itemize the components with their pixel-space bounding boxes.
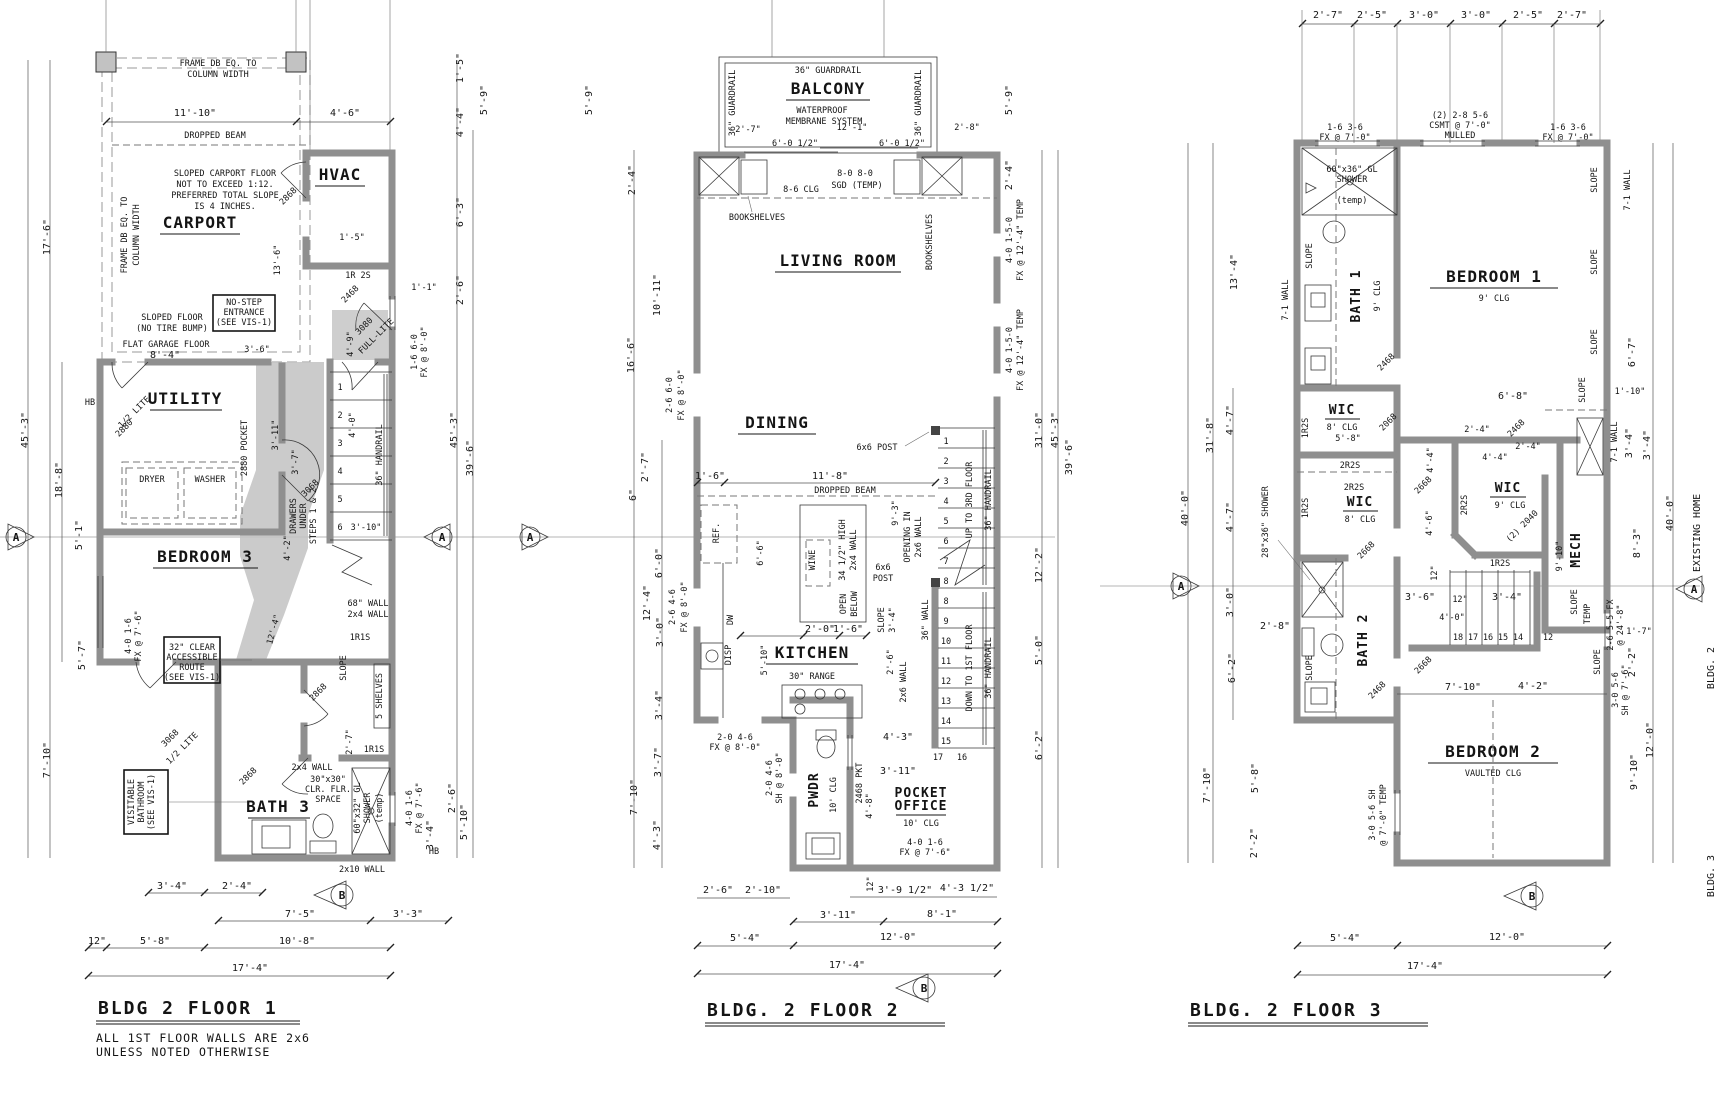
floorplan-sheet: A A A A A 1 2 3 4 xyxy=(0,0,1722,1100)
dim: 4'-0" xyxy=(348,412,358,438)
dim: 2'-7" xyxy=(1557,10,1587,21)
dim: 2'-5" xyxy=(1513,10,1543,21)
riser-label: 1R1S xyxy=(350,633,370,643)
dim: 3'-7" xyxy=(291,449,301,475)
door-tag: 2468 xyxy=(1506,418,1528,440)
shower-label: 60"x32" GL xyxy=(353,782,363,833)
window-tag: FX @ 7'-6" xyxy=(134,610,144,661)
window-tag: 1-6 3-6 xyxy=(1327,123,1363,133)
window-tag: FX @ 7'-0" xyxy=(1319,133,1370,143)
dim: 4'-4" xyxy=(1482,453,1508,463)
note: FRAME DB EQ. TO xyxy=(120,197,130,274)
dim: 3'-0" xyxy=(1461,10,1491,21)
window-tag: 2-0 4-6 xyxy=(717,733,753,743)
dim: 2'-7" xyxy=(640,452,651,482)
wall-note: 2x4 WALL xyxy=(348,610,389,620)
dim: 17'-4" xyxy=(232,963,268,974)
dim: 1'-5" xyxy=(339,233,365,243)
dim: 7'-10" xyxy=(42,742,53,778)
window-tag: CSMT @ 7'-0" xyxy=(1429,121,1490,131)
riser-label: 1R2S xyxy=(1490,559,1510,569)
room-label-office: OFFICE xyxy=(895,799,948,814)
window-tag: MULLED xyxy=(1445,131,1476,141)
dim: 6" xyxy=(628,489,639,501)
dim: 12'-0" xyxy=(1489,932,1525,943)
door-tag: 8-0 8-0 xyxy=(837,169,873,179)
window-tag: SH @ 8'-0" xyxy=(775,752,785,803)
dim: 3'-4" xyxy=(425,820,436,850)
slope-label: SLOPE xyxy=(1590,249,1600,275)
utility-fixtures: DRYER WASHER xyxy=(122,462,242,524)
stair-number: 6 xyxy=(337,523,342,533)
dim: 5'-9" xyxy=(1004,85,1015,115)
room-label-bath2: BATH 2 xyxy=(1356,614,1371,667)
dim: 2'-5" xyxy=(1357,10,1387,21)
note: ROUTE xyxy=(179,663,205,673)
stair-number: 14 xyxy=(1513,633,1523,643)
bookshelves-label: BOOKSHELVES xyxy=(925,214,935,270)
dim: 13'-4" xyxy=(1229,254,1240,290)
riser-label: 1R2S xyxy=(1301,418,1311,438)
floor3-title: BLDG. 2 FLOOR 3 xyxy=(1190,1000,1383,1021)
dim: 4'-8" xyxy=(865,793,875,819)
note: (NO TIRE BUMP) xyxy=(136,324,208,334)
window-tag: FX @ 12'-4" TEMP xyxy=(1016,199,1026,281)
dim: 2'-4" xyxy=(222,881,252,892)
dim: 2'-4" xyxy=(627,165,638,195)
dim: 3'-0" xyxy=(655,617,666,647)
dim: 40'-0" xyxy=(1180,490,1191,526)
window-tag: FX @ 7'-6" xyxy=(899,848,950,858)
note: DRAWERS xyxy=(289,498,299,534)
wall-note: 36" WALL xyxy=(921,600,931,641)
post xyxy=(931,426,940,435)
dim: 5'-4" xyxy=(730,933,760,944)
dim: 1'-6" xyxy=(833,624,863,635)
room-label-wic: WIC xyxy=(1329,403,1355,418)
dim: 7'-5" xyxy=(285,909,315,920)
dim: 3'-4" xyxy=(157,881,187,892)
shower-label: SHOWER xyxy=(363,792,373,824)
dim: 6'-2" xyxy=(1227,653,1238,683)
wall-note: 7-1 WALL xyxy=(1623,170,1633,211)
shower-label: 28"x36" SHOWER xyxy=(1261,485,1271,558)
shower-label: (temp) xyxy=(1337,196,1368,206)
room-label-living: LIVING ROOM xyxy=(780,251,897,270)
dim: 9'-10" xyxy=(1629,754,1640,790)
floor2-title: BLDG. 2 FLOOR 2 xyxy=(707,1000,900,1021)
marker-label: B xyxy=(1529,890,1536,903)
riser-label: 2R2S xyxy=(1344,483,1364,493)
shelves-label: 5 SHELVES xyxy=(375,673,385,719)
floor1-title: BLDG 2 FLOOR 1 xyxy=(98,998,278,1019)
dim: 2'-4" xyxy=(1464,425,1490,435)
dim: 5'-10" xyxy=(760,645,770,676)
room-label-wic: WIC xyxy=(1495,481,1521,496)
dim: 3'-0" xyxy=(1225,587,1236,617)
door-tag: 2868 xyxy=(238,766,260,788)
dim: 4'-9" xyxy=(346,331,356,357)
washer-label: WASHER xyxy=(195,475,227,485)
window-tag: (2) 2-8 5-6 xyxy=(1432,111,1488,121)
window-tag: FX @ 8'-0" xyxy=(680,581,690,632)
window-tag: FX @ 12'-4" TEMP xyxy=(1016,309,1026,391)
dim: 2'-6" xyxy=(703,885,733,896)
note: COLUMN WIDTH xyxy=(187,70,248,80)
window-tag: 4-0 1-5-0 xyxy=(1005,327,1015,373)
dim: 9'-10" xyxy=(1555,541,1565,572)
room-label-carport: CARPORT xyxy=(163,213,237,232)
disposal-label: DISP xyxy=(724,645,734,665)
window-tag: 2-6 6-0 xyxy=(665,377,675,413)
stair-number: 2 xyxy=(943,457,948,467)
note: NOT TO EXCEED 1:12. xyxy=(176,180,273,190)
note: SPACE xyxy=(315,795,341,805)
dim: 6'-0" xyxy=(654,548,665,578)
dim: 11'-10" xyxy=(174,108,216,119)
fridge-label: REF. xyxy=(712,523,722,543)
note: BATHROOM xyxy=(137,782,147,823)
dim: 1'-7" xyxy=(1626,627,1652,637)
dim: 2'-10" xyxy=(745,885,781,896)
dim: 12'-4" xyxy=(642,585,653,621)
post xyxy=(931,578,940,587)
ceiling-label: 8-6 CLG xyxy=(783,185,819,195)
marker-label: A xyxy=(1178,580,1185,593)
dim: 3'-6" xyxy=(244,345,270,355)
stair-number: 2 xyxy=(337,411,342,421)
hose-bib-label: HB xyxy=(85,398,95,408)
dim: 31'-0" xyxy=(1034,412,1045,448)
existing-home-label: EXISTING HOME xyxy=(1692,494,1703,572)
note: (SEE VIS-1) xyxy=(216,318,272,328)
note: 2x6 WALL xyxy=(914,517,924,558)
wall-note: 7-1 WALL xyxy=(1281,280,1291,321)
handrail-label: 36" HANDRAIL xyxy=(375,424,385,485)
dim: 8'-3" xyxy=(1632,528,1643,558)
window-tag: 4-0 1-6 xyxy=(124,618,134,654)
note: STEPS 1 & 2 xyxy=(309,488,319,544)
dim: 3'-9 1/2" xyxy=(878,885,932,896)
room-label-hvac: HVAC xyxy=(319,165,362,184)
grid-marker-b3: B xyxy=(1504,882,1543,910)
ceiling-label: 8' CLG xyxy=(1345,515,1376,525)
note: (SEE VIS-1) xyxy=(164,673,220,683)
note: 30"x30" xyxy=(310,775,346,785)
stair-number: 15 xyxy=(941,737,951,747)
temp-label: TEMP xyxy=(1583,604,1593,624)
dim: 4'-3 1/2" xyxy=(940,883,994,894)
stair-number: 5 xyxy=(943,517,948,527)
note: ACCESSIBLE xyxy=(166,653,217,663)
dim: 5'-8" xyxy=(1335,434,1361,444)
door-tag: 2880 POCKET xyxy=(240,420,250,476)
window-tag: 4-0 1-6 xyxy=(405,790,415,826)
dim: 11'-8" xyxy=(812,471,848,482)
dim: 6'-6" xyxy=(756,540,766,566)
door-tag: (2) 2040 xyxy=(1505,509,1541,545)
dim: 45'-3" xyxy=(449,412,460,448)
dim: 5'-7" xyxy=(77,640,88,670)
stair-number: 17 xyxy=(933,753,943,763)
riser-label: 1R1S xyxy=(364,745,384,755)
range-label: 30" RANGE xyxy=(789,672,835,682)
dim: 40'-0" xyxy=(1665,495,1676,531)
post-label: POST xyxy=(873,574,893,584)
dim: 4'-6" xyxy=(330,108,360,119)
dim: 3'-10" xyxy=(351,523,382,533)
guardrail-label: 36" GUARDRAIL xyxy=(795,66,862,76)
note: FLAT GARAGE FLOOR xyxy=(123,340,211,350)
stair-number: 8 xyxy=(943,597,948,607)
stair-number: 18 xyxy=(1453,633,1463,643)
dim: 4'-2" xyxy=(283,535,293,561)
door-tag: 2868 xyxy=(308,682,330,704)
stair-direction: UP TO 3RD FLOOR xyxy=(965,461,975,539)
ceiling-label: 10' CLG xyxy=(903,819,939,829)
post-label: 6x6 xyxy=(875,563,890,573)
stair-direction: DOWN TO 1ST FLOOR xyxy=(965,624,975,712)
riser-label: 1R2S xyxy=(1301,498,1311,518)
dim: 6'-8" xyxy=(1498,391,1528,402)
stair-number: 16 xyxy=(1483,633,1493,643)
wine-label: WINE xyxy=(808,550,818,570)
marker-label: A xyxy=(1691,583,1698,596)
wall-note: 68" WALL xyxy=(348,599,389,609)
stair-number: 3 xyxy=(943,477,948,487)
stair-number: 12 xyxy=(941,677,951,687)
dim: 3'-11" xyxy=(820,910,856,921)
window-tag: SH @ 7'-6" xyxy=(1621,664,1631,715)
stair-number: 13 xyxy=(941,697,951,707)
stair-number: 12 xyxy=(1543,633,1553,643)
marker-label: A xyxy=(13,531,20,544)
window-tag: 3-0 5-6 SH xyxy=(1368,789,1378,840)
wall-note: 34 1/2" HIGH xyxy=(838,519,848,580)
window-tag: 4-0 1-6 xyxy=(907,838,943,848)
note: UNDER xyxy=(299,502,309,528)
dryer-label: DRYER xyxy=(139,475,165,485)
slope-label: SLOPE xyxy=(1593,649,1603,675)
door-tag: 2468 xyxy=(340,284,362,306)
stair-number: 6 xyxy=(943,537,948,547)
dim: 4'-4" xyxy=(1426,447,1436,473)
window-tag: 3-0 5-6 xyxy=(1611,672,1621,708)
room-label-bedroom1: BEDROOM 1 xyxy=(1446,267,1542,286)
floor3-plan: 2'-7" 2'-5" 3'-0" 3'-0" 2'-5" 2'-7" 1-6 … xyxy=(1180,10,1717,1026)
dim: 8'-1" xyxy=(927,909,957,920)
dim: 4'-2" xyxy=(1518,681,1548,692)
dim: 5'-9" xyxy=(584,85,595,115)
wall-note: 2x6 WALL xyxy=(899,662,909,703)
window-tag: FX @ 7'-6" xyxy=(415,782,425,833)
dim: 12" xyxy=(1430,565,1440,580)
dim: 7'-10" xyxy=(629,779,640,815)
dim: 4'-0" xyxy=(1439,613,1465,623)
stair-number: 7 xyxy=(943,557,948,567)
dim: 2'-7" xyxy=(735,125,761,135)
note: WATERPROOF xyxy=(796,106,847,116)
slope-label: SLOPE xyxy=(339,655,349,681)
dim: 2'-6" xyxy=(447,783,458,813)
dim: 3'-0" xyxy=(1409,10,1439,21)
dim: 2'-7" xyxy=(345,729,355,755)
door-tag: 2468 xyxy=(1367,680,1389,702)
note: SLOPED FLOOR xyxy=(141,313,203,323)
floor1-note: ALL 1ST FLOOR WALLS ARE 2x6 xyxy=(96,1031,310,1045)
dim: 31'-8" xyxy=(1205,417,1216,453)
note: ENTRANCE xyxy=(224,308,265,318)
room-label-dining: DINING xyxy=(745,413,809,432)
dim: 1'-10" xyxy=(1615,387,1646,397)
dim: 3'-4" xyxy=(1492,592,1522,603)
dim: 4'-6" xyxy=(1425,510,1435,536)
stair-number: 14 xyxy=(941,717,951,727)
note: COLUMN WIDTH xyxy=(132,204,142,265)
dim: 12'-0" xyxy=(1645,722,1656,758)
room-label-bedroom3: BEDROOM 3 xyxy=(157,547,253,566)
dim: 8'-4" xyxy=(150,350,180,361)
door-tag: 2468 PKT xyxy=(855,763,865,804)
stair-number: 17 xyxy=(1468,633,1478,643)
dim: 6'-7" xyxy=(1627,337,1638,367)
dim: 12" xyxy=(1452,595,1467,605)
room-label-mech: MECH xyxy=(1569,532,1584,567)
window-tag: FX @ 8'-0" xyxy=(677,369,687,420)
room-label-wic: WIC xyxy=(1347,495,1373,510)
room-label-pwdr: PWDR xyxy=(807,772,822,807)
wall-note: 2x10 WALL xyxy=(339,865,385,875)
window-tag: 4-0 1-5-0 xyxy=(1005,217,1015,263)
window-tag: 1-6 3-6 xyxy=(1550,123,1586,133)
dim: 2'-4" xyxy=(1004,160,1015,190)
bookshelves-label: BOOKSHELVES xyxy=(729,213,785,223)
window-tag: @ 24'-8" xyxy=(1616,605,1626,646)
dim: 9'-3" xyxy=(891,500,901,526)
dim: 17'-6" xyxy=(42,219,53,255)
dim: 12'-0" xyxy=(880,932,916,943)
note: SLOPED CARPORT FLOOR xyxy=(174,169,277,179)
dim: 17'-4" xyxy=(829,960,865,971)
marker-label: B xyxy=(921,982,928,995)
wall-note: 2x4 WALL xyxy=(849,530,859,571)
dim: 5'-9" xyxy=(479,85,490,115)
window-tag: 2-6 4-6 xyxy=(668,589,678,625)
door-tag: 2668 xyxy=(1356,540,1378,562)
note: NO-STEP xyxy=(226,298,262,308)
dim: 7'-10" xyxy=(1445,682,1481,693)
dim: 12'-1" xyxy=(837,123,868,133)
dim: 5'-1" xyxy=(74,520,85,550)
dim: 5'-4" xyxy=(1330,933,1360,944)
entry-hatch xyxy=(272,310,326,362)
note: PREFERRED TOTAL SLOPE xyxy=(171,191,278,201)
room-label-kitchen: KITCHEN xyxy=(775,643,849,662)
note: OPEN xyxy=(839,594,849,614)
dim: 2'-2" xyxy=(1249,828,1260,858)
handrail-label: 36" HANDRAIL xyxy=(984,637,994,698)
dim: 3'-4" xyxy=(888,607,898,633)
dropped-beam-label: DROPPED BEAM xyxy=(814,486,875,496)
stair-number: 8 xyxy=(943,577,948,587)
window-tag: 2-6 5-5 FX xyxy=(1606,599,1616,651)
dim: 10'-8" xyxy=(279,936,315,947)
dim: 2'-8" xyxy=(1260,621,1290,632)
stair-number: 4 xyxy=(943,497,948,507)
dim: 4'-3" xyxy=(652,820,663,850)
note: (SEE VIS-1) xyxy=(147,774,157,830)
ceiling-label: 9' CLG xyxy=(1495,501,1526,511)
dropped-beam-label: DROPPED BEAM xyxy=(184,131,245,141)
door-tag: 2668 xyxy=(1413,475,1435,497)
dim: 45'-3" xyxy=(20,412,31,448)
bldg3-label: BLDG. 3 xyxy=(1706,855,1717,897)
guardrail-label: 36" GUARDRAIL xyxy=(914,70,924,137)
window-tag: 2-0 4-6 xyxy=(765,760,775,796)
dim: 2'-0" xyxy=(805,624,835,635)
stair-number: 1 xyxy=(943,437,948,447)
dishwasher-label: DW xyxy=(726,614,736,625)
room-label-bath1: BATH 1 xyxy=(1349,270,1364,323)
dim: 2'-8" xyxy=(954,123,980,133)
door-tag: 2868 xyxy=(278,186,300,208)
grid-marker-a3-right: A xyxy=(1676,576,1704,602)
floor2-plan: 36" GUARDRAIL BALCONY WATERPROOF MEMBRAN… xyxy=(584,0,1075,1026)
slope-label: SLOPE xyxy=(1305,243,1315,269)
dim: 2'-4" xyxy=(1515,442,1541,452)
dim: 12" xyxy=(866,876,876,891)
dim: 17'-4" xyxy=(1407,961,1443,972)
dim: 3'-4" xyxy=(1624,428,1635,458)
floor1-note: UNLESS NOTED OTHERWISE xyxy=(96,1045,270,1059)
slope-label: SLOPE xyxy=(1305,655,1315,681)
slope-label: SLOPE xyxy=(877,607,887,633)
shower-label: SHOWER xyxy=(1337,175,1369,185)
marker-label: A xyxy=(527,531,534,544)
stair-number: 5 xyxy=(337,495,342,505)
floor1-stair-numbers: 1 2 3 4 5 6 3'-10" 36" HANDRAIL xyxy=(337,383,385,533)
handrail-label: 36" HANDRAIL xyxy=(984,469,994,530)
stair-number: 4 xyxy=(337,467,342,477)
dim: 12'-2" xyxy=(1034,547,1045,583)
dim: 3'-3" xyxy=(393,909,423,920)
grid-marker-b1: B xyxy=(314,881,353,909)
room-label-utility: UTILITY xyxy=(148,389,222,408)
window-tag: FX @ 8'-0" xyxy=(709,743,760,753)
slope-label: SLOPE xyxy=(1590,167,1600,193)
note: 32" CLEAR xyxy=(169,643,216,653)
note: BELOW xyxy=(850,590,860,616)
dim: 1'-1" xyxy=(411,283,437,293)
dim: 3'-11" xyxy=(880,766,916,777)
dim: 3'-4" xyxy=(1642,430,1653,460)
dim: 10'-11" xyxy=(652,274,663,316)
note: OPENING IN xyxy=(903,511,913,562)
dim: 6'-0 1/2" xyxy=(772,139,818,149)
stair-number: 15 xyxy=(1498,633,1508,643)
dim: 3'-4" xyxy=(654,690,665,720)
dim: 39'-6" xyxy=(1064,439,1075,475)
note: IS 4 INCHES. xyxy=(194,202,255,212)
wall-note: 2x4 WALL xyxy=(292,763,333,773)
dim: 3'-6" xyxy=(1405,592,1435,603)
stair-number: 10 xyxy=(941,637,951,647)
stair-number: 3 xyxy=(337,439,342,449)
door-tag: 2668 xyxy=(1413,655,1435,677)
ceiling-label: 9' CLG xyxy=(1479,294,1510,304)
dim: 39'-6" xyxy=(465,440,476,476)
note: CLR. FLR. xyxy=(305,785,351,795)
